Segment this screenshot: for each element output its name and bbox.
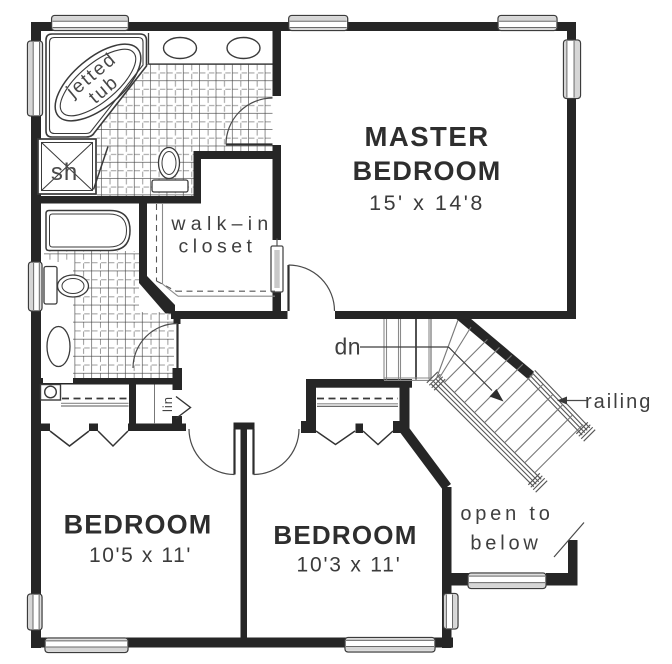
svg-text:MASTER: MASTER [364,121,489,152]
svg-text:lin: lin [160,396,175,412]
svg-text:walk–in: walk–in [170,213,273,235]
svg-text:BEDROOM: BEDROOM [353,156,502,186]
svg-text:BEDROOM: BEDROOM [273,520,417,550]
svg-text:closet: closet [179,236,257,258]
svg-text:15' x 14'8: 15' x 14'8 [369,191,485,215]
svg-text:open to: open to [460,503,553,525]
svg-text:sh: sh [51,159,78,186]
svg-text:railing: railing [585,391,652,413]
svg-text:dn: dn [335,334,362,360]
svg-text:10'5 x 11': 10'5 x 11' [89,544,192,567]
svg-text:BEDROOM: BEDROOM [64,510,213,540]
svg-text:10'3 x 11': 10'3 x 11' [296,554,401,577]
svg-text:below: below [470,533,541,555]
